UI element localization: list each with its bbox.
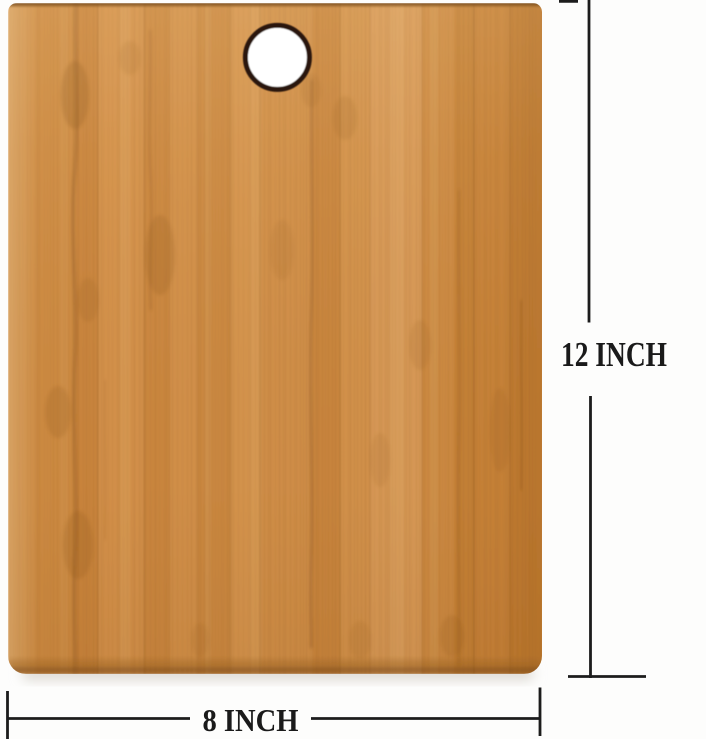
svg-text:8 INCH: 8 INCH xyxy=(203,702,299,738)
svg-text:12 INCH: 12 INCH xyxy=(561,335,667,374)
